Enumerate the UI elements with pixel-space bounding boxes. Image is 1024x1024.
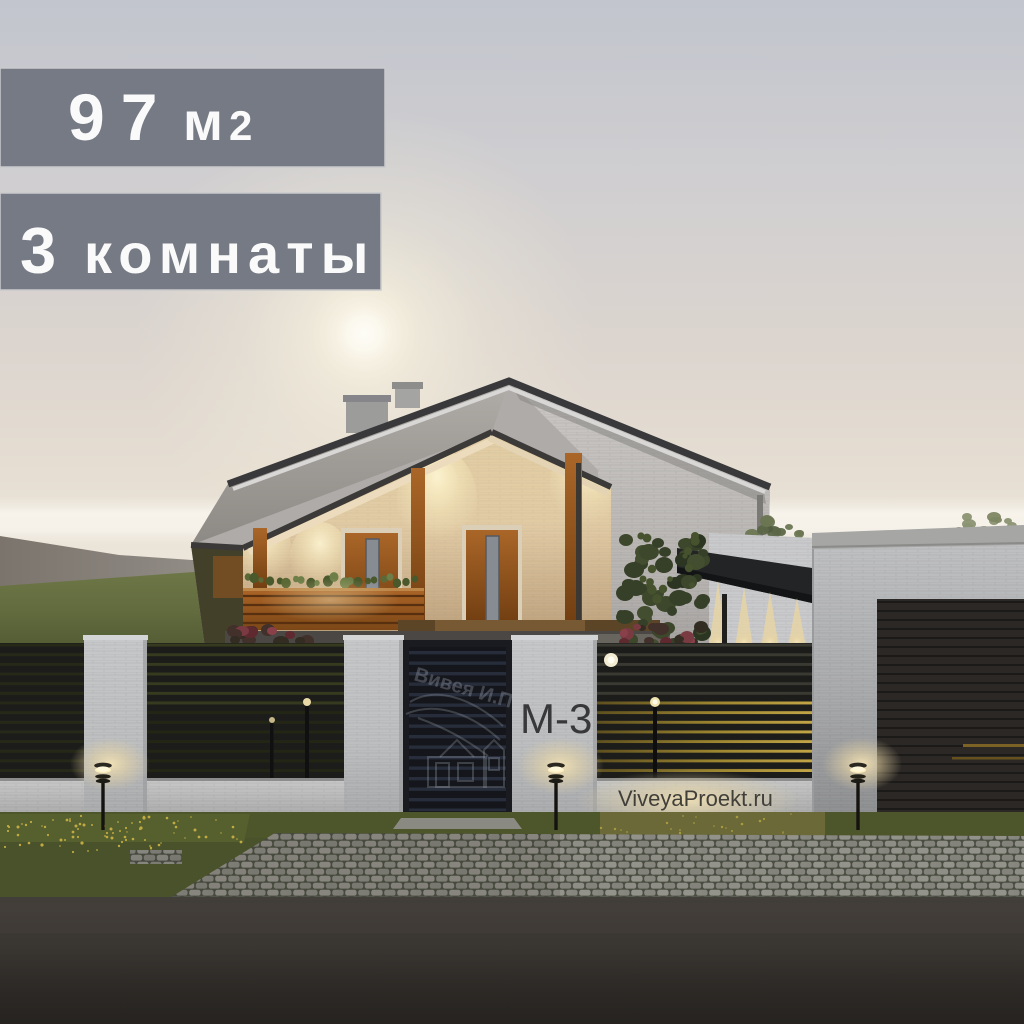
svg-text:м: м <box>183 92 223 152</box>
svg-text:М-3: М-3 <box>520 695 592 742</box>
svg-text:3: 3 <box>20 214 56 287</box>
svg-text:2: 2 <box>229 102 252 149</box>
svg-text:97: 97 <box>68 80 173 154</box>
svg-text:комнаты: комнаты <box>84 222 375 285</box>
svg-text:ViveyaProekt.ru: ViveyaProekt.ru <box>618 786 773 811</box>
